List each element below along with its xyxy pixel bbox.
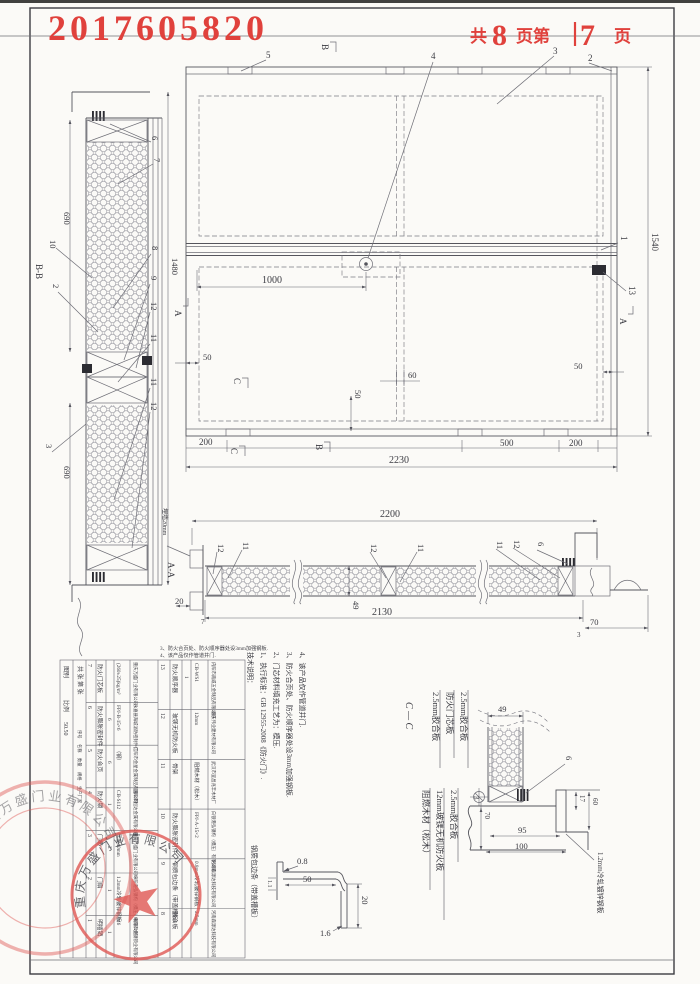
scanned-drawing-sheet: 2017605820 共 8 页第 7 页	[0, 0, 700, 984]
bom-cell: FPJ-B-15×6	[115, 705, 121, 731]
dim-3cc: 3	[472, 796, 480, 800]
callout-1: 1	[619, 236, 629, 241]
tb-scale-label: 比例	[62, 700, 70, 712]
dim-70cc: 70	[483, 812, 491, 820]
mark-a-left: A	[173, 310, 183, 317]
bom-cell: 12mm	[193, 712, 199, 725]
mark-c-inner: C	[232, 378, 242, 384]
callout-6: 6	[150, 136, 160, 140]
bom-cell: 8	[159, 912, 165, 915]
bom-cell: 防火合页	[96, 749, 104, 772]
bom-header-0: 序号	[76, 730, 83, 739]
bom-cell: 重庆万盛门业有限公司	[132, 662, 139, 705]
aa-callout-12b: 12	[369, 544, 379, 553]
callout-12b: 12	[149, 402, 159, 411]
bom-cell: 6	[106, 761, 112, 764]
aa-callout-11b: 11	[416, 544, 426, 552]
dim-3aa: 3	[577, 631, 581, 639]
bom-cell: 河南森源达科技有限公司	[210, 910, 217, 957]
bom-cell: (260±25)kg/m³	[115, 663, 122, 695]
tb-type-label: 图别	[62, 666, 70, 678]
dim-2: 2	[51, 284, 61, 288]
dim-200-left: 200	[199, 437, 213, 447]
dim-60: 60	[591, 798, 599, 806]
steel-note: 1.2mm冷轧镀锌钢板	[596, 852, 605, 914]
dim-500: 500	[500, 438, 514, 448]
layer-top-1: 防火门芯板	[445, 692, 455, 735]
label-bb: B-B	[34, 264, 44, 279]
dim-20: 20	[175, 596, 184, 606]
bom-cell: （钢）	[115, 748, 123, 764]
aa-callout-11c: 11	[495, 541, 505, 549]
dim-17: 17	[578, 795, 586, 803]
bom-cell: 6	[86, 706, 92, 709]
dim-49: 49	[351, 601, 361, 610]
bom-header-3: 规格	[76, 772, 83, 781]
bom-cell: CB-S112	[115, 790, 121, 810]
cc-callout-6: 6	[564, 756, 574, 760]
layer-bot-0: 阻燃木材（松木）	[421, 790, 431, 858]
aa-callout-12c: 12	[512, 540, 522, 549]
bom-cell: 11	[159, 763, 165, 769]
bom-cell: 骨架	[171, 763, 178, 775]
callout-4: 4	[431, 51, 436, 61]
dim-50-right: 50	[574, 361, 583, 371]
bom-cell: 玻镁无机防火板	[171, 713, 179, 754]
pages-prefix: 共	[470, 27, 487, 46]
stamp-number: 2017605820	[48, 8, 268, 48]
bom-cell: 10	[159, 813, 165, 819]
dim-1p6: 1.6	[320, 928, 331, 938]
profile-label: 钢质包边条（带盖槽板）	[250, 845, 259, 922]
wall-depth-note: 埋墙20mm	[161, 508, 169, 536]
dim-2200: 2200	[380, 509, 400, 520]
mark-a-right: A	[618, 318, 628, 325]
bom-cell: 武汉市宜昌兆丰木材厂	[210, 761, 217, 805]
notes-line-4: 4、该产品仅作管道井门.	[298, 652, 307, 727]
dim-0p8: 0.8	[297, 856, 308, 866]
bom-cell: 12	[159, 713, 165, 719]
dim-3: 3	[44, 444, 54, 448]
bom-cell: FPJ-A-15×2	[193, 812, 199, 838]
bom-cell: 国阳市恒达金属有限公司	[132, 789, 139, 836]
dim-50p: 50	[303, 874, 312, 884]
bom-cell: 永嘉县海城消防密封件厂	[132, 704, 139, 752]
dim-1000: 1000	[262, 275, 282, 286]
notes-line-3: 3、防火合页处、防火顺序器处设3mm加强钢板.	[285, 652, 294, 798]
callout-11b: 11	[149, 378, 159, 386]
bom-cell: 7	[86, 664, 92, 667]
notes-inline-3: 3、防火合页处、防火顺序器处设3mm加强钢板.	[160, 644, 268, 652]
layer-bot-2: 2.5mm胶合板	[449, 790, 459, 840]
label-aa: A-A	[166, 562, 176, 578]
dim-70: 70	[590, 617, 599, 627]
bom-cell: 1	[86, 919, 92, 922]
bom-cell: 绵阳市金钢锁业有限公司	[132, 917, 139, 964]
callout-12a: 12	[149, 302, 159, 311]
pages-suffix: 页	[614, 27, 631, 46]
bom-cell: 防火门芯板	[96, 664, 104, 693]
bom-cell: 9	[159, 862, 165, 865]
mark-b-bottom: B	[314, 444, 324, 450]
layer-top-0: 2.5mm胶合板	[431, 692, 441, 742]
callout-11a: 11	[149, 334, 159, 342]
bom-cell: 1	[106, 931, 112, 934]
dim-1540: 1540	[650, 233, 660, 252]
bom-cell: 胶合板	[171, 912, 179, 930]
pages-total: 8	[492, 19, 507, 52]
bom-cell: 3	[86, 834, 92, 837]
dim-690-top: 690	[62, 212, 72, 225]
bom-cell: 重庆伟业建材有限公司	[210, 711, 217, 754]
notes-title: 技术说明：	[246, 652, 255, 687]
aa-callout-6: 6	[536, 542, 546, 546]
layer-top-2: 2.5mm胶合板	[459, 692, 469, 742]
bom-cell: 1	[183, 676, 189, 679]
callout-5: 5	[266, 50, 271, 60]
drawing-canvas: 2017605820 共 8 页第 7 页	[0, 0, 700, 984]
dim-20p: 20	[360, 896, 370, 905]
bom-cell: 1	[106, 803, 112, 806]
dim-49cc: 49	[498, 704, 507, 714]
dim-2230: 2230	[389, 455, 409, 466]
callout-7: 7	[152, 158, 162, 162]
bom-header-1: 名称	[76, 744, 83, 753]
bom-cell: 5	[86, 749, 92, 752]
tb-sheet: 共 张 第 张	[76, 666, 84, 695]
callout-9: 9	[149, 276, 159, 280]
callout-8: 8	[150, 246, 160, 250]
dim-1p1: 1.1	[266, 880, 272, 888]
pages-current: 7	[580, 19, 595, 52]
dim-50-mid: 50	[353, 390, 363, 399]
dim-2130: 2130	[372, 607, 392, 618]
dim-60: 60	[408, 370, 417, 380]
mark-c-bottom: C	[229, 448, 239, 454]
bom-cell: 河南森源达科技有限公司	[210, 860, 217, 907]
bom-cell: 防火顺序器	[171, 664, 179, 693]
bom-cell: 防火膨胀密封件	[96, 706, 104, 747]
notes-inline-4: 4、该产品仅作管道井门.	[160, 651, 216, 659]
bom-cell: 6	[106, 718, 112, 721]
tb-scale-value: 50.50	[62, 722, 68, 736]
pages-mid: 页第	[516, 26, 550, 46]
scan-edge	[0, 0, 700, 3]
notes-line-1: 1、执行标准：GB 12955-2008《防火门》.	[259, 652, 268, 780]
layer-bot-1: 12mm玻镁无机防火板	[435, 790, 445, 872]
callout-13: 13	[627, 286, 637, 296]
dim-200-right: 200	[569, 438, 583, 448]
aa-callout-12a: 12	[216, 544, 226, 553]
dim-690-bottom: 690	[62, 466, 72, 479]
callout-2: 2	[588, 53, 593, 63]
callout-3: 3	[553, 46, 558, 56]
dim-95: 95	[518, 825, 527, 835]
aa-callout-11a: 11	[241, 542, 251, 550]
bom-cell: 内阳市南威五金制品有限公司	[210, 662, 217, 718]
dim-7: 7	[201, 618, 205, 626]
dim-50-left: 50	[203, 352, 212, 362]
notes-line-2: 2、门芯材料填充工艺为：模压.	[272, 652, 281, 748]
dim-100: 100	[515, 841, 528, 851]
bom-cell: CB-WS1	[193, 663, 199, 682]
bom-cell: 13	[159, 664, 165, 670]
label-cc: C — C	[403, 702, 414, 730]
callout-10: 10	[48, 240, 58, 249]
dim-1480: 1480	[170, 258, 180, 275]
mark-b-top: B	[320, 44, 330, 50]
bom-cell: 阻燃木材（松木）	[193, 762, 201, 804]
bom-header-2: 数量	[76, 758, 83, 767]
bom-cell: 1	[106, 889, 112, 892]
